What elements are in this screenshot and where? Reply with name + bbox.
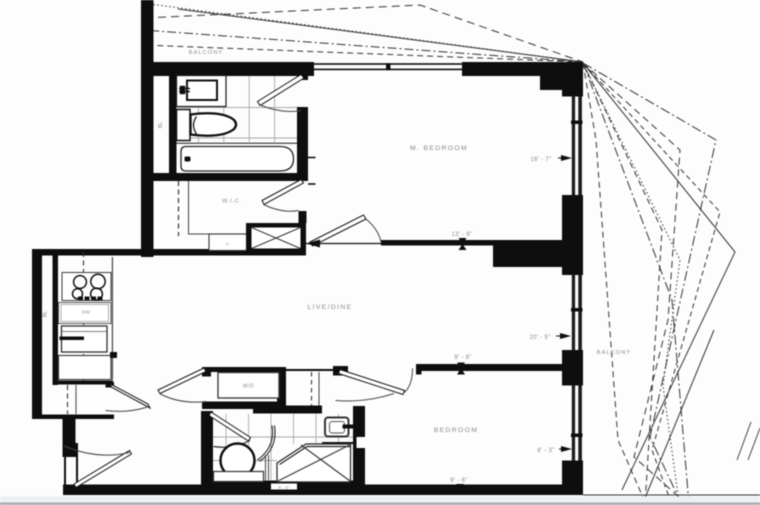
svg-text:BALCONY: BALCONY — [597, 350, 631, 356]
svg-text:L.: L. — [226, 241, 230, 246]
svg-text:8' - 3": 8' - 3" — [537, 448, 554, 454]
svg-text:9' - 6": 9' - 6" — [278, 485, 290, 490]
svg-text:W/D: W/D — [243, 384, 255, 390]
svg-text:LIVE/DINE: LIVE/DINE — [307, 304, 352, 311]
svg-text:M. BEDROOM: M. BEDROOM — [410, 145, 468, 152]
svg-text:13' - 8": 13' - 8" — [451, 232, 472, 238]
svg-text:20' - 5": 20' - 5" — [529, 335, 550, 341]
svg-text:W.I.C.: W.I.C. — [222, 199, 241, 205]
svg-text:9' - 6": 9' - 6" — [450, 478, 467, 484]
svg-text:9' - 8": 9' - 8" — [454, 355, 471, 361]
svg-text:BL: BL — [43, 311, 49, 317]
svg-text:DW: DW — [82, 310, 90, 316]
svg-text:BALCONY: BALCONY — [189, 50, 223, 56]
svg-text:BEDROOM: BEDROOM — [434, 427, 479, 434]
svg-text:BL: BL — [158, 122, 164, 128]
svg-text:16' - 7": 16' - 7" — [530, 157, 551, 163]
